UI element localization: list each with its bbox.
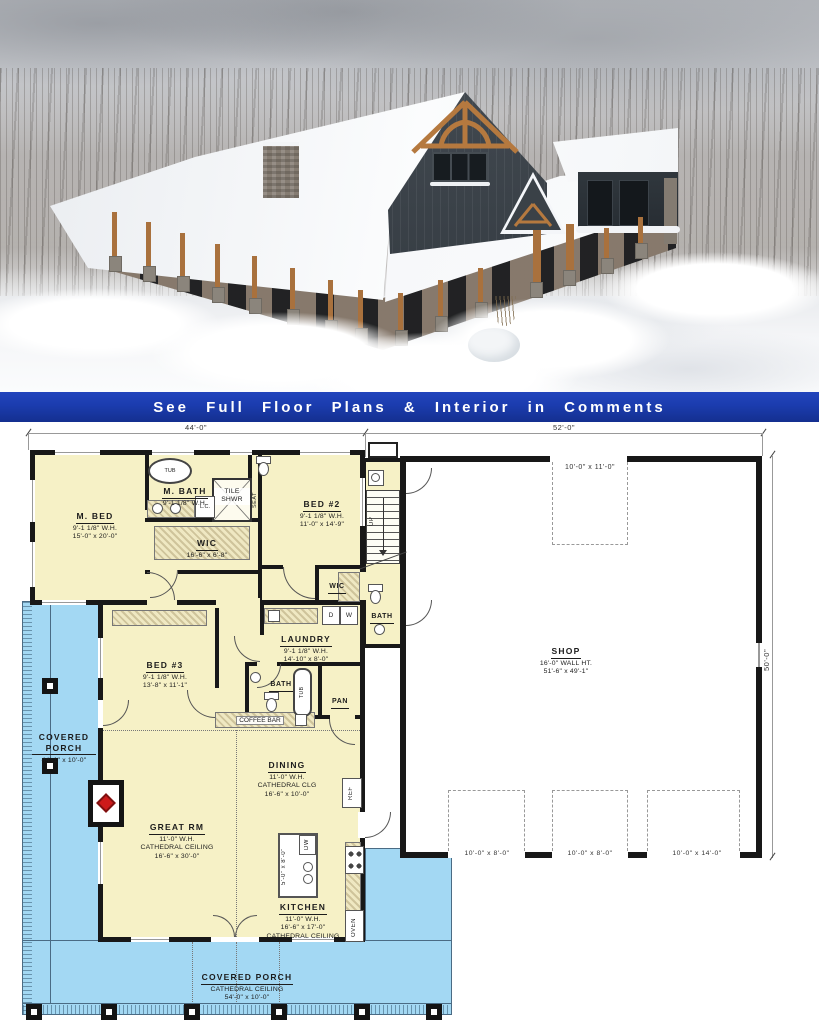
ceiling-dashed <box>103 730 360 731</box>
room-label-dining: DINING 11'-0" W.H. CATHEDRAL CLG 16'-6" … <box>227 754 347 799</box>
porch-post <box>42 678 58 694</box>
room-label-shop: SHOP 16'-0" WALL HT. 51'-6" x 49'-1" <box>496 640 636 677</box>
room-label-porch-bottom: COVERED PORCH CATHEDRAL CEILING 54'-0" x… <box>167 966 327 1003</box>
window <box>55 450 100 455</box>
porch-post <box>146 222 151 280</box>
window <box>30 542 35 587</box>
garage-door-label: 10'-0" x 14'-0" <box>654 850 740 857</box>
garage-door-track <box>552 790 628 851</box>
garage-door <box>587 180 613 226</box>
banner: See Full Floor Plans & Interior in Comme… <box>0 392 819 422</box>
garage-wing-wall <box>578 172 678 230</box>
room-label-m-bath: M. BATH 9'-1 1/8" W.H. <box>135 480 235 508</box>
porch-post <box>215 244 220 301</box>
room-label-bed3: BED #3 9'-1 1/8" W.H. 13'-8" x 11'-1" <box>105 654 225 691</box>
entry-truss-icon <box>513 202 553 228</box>
dim-label-52: 52'-0" <box>518 423 610 432</box>
door-opening <box>216 598 260 607</box>
garage-door-label: 10'-0" x 8'-0" <box>447 850 527 857</box>
hero-photo <box>0 0 819 392</box>
porch-post <box>604 228 609 272</box>
stone-corner <box>664 178 677 244</box>
porch-post <box>271 1004 287 1020</box>
sink-icon <box>371 473 380 482</box>
garage-door-track <box>448 790 525 851</box>
wall <box>178 570 258 574</box>
room-label-bed2: BED #2 9'-1 1/8" W.H. 11'-0" x 14'-9" <box>267 493 377 530</box>
dim-ext <box>762 433 763 456</box>
stair-arrowhead <box>379 550 387 556</box>
dim-line-right <box>772 456 773 858</box>
room-label-bath-shop: BATH <box>357 604 407 625</box>
window <box>98 842 103 884</box>
floor-plan: 44'-0" 52'-0" 50'-0" <box>0 422 819 1024</box>
laundry-sink <box>268 610 280 622</box>
window <box>755 643 763 667</box>
dim-label-50: 50'-0" <box>762 630 771 690</box>
window <box>42 600 86 605</box>
dim-label-44: 44'-0" <box>150 423 242 432</box>
porch-edge-hatch <box>23 1005 451 1014</box>
room-label-coffee-bar: COFFEE BAR <box>205 717 315 724</box>
dim-ext <box>28 433 29 450</box>
closet-rod <box>112 610 207 626</box>
toilet-icon <box>264 692 278 712</box>
wall <box>258 455 262 603</box>
window-snow-sill <box>430 182 490 186</box>
wall <box>245 662 249 719</box>
social-graphic: See Full Floor Plans & Interior in Comme… <box>0 0 819 1024</box>
porch-post <box>354 1004 370 1020</box>
porch-post <box>638 217 643 257</box>
window <box>98 638 103 678</box>
porch-post <box>112 212 117 270</box>
room-label-porch-left: COVERED PORCH 44'-1" x 10'-0" <box>24 732 104 765</box>
dryer: D <box>322 606 340 625</box>
door-swing <box>365 812 391 838</box>
room-label-wic2: WIC <box>317 574 357 595</box>
room-label-wic: WIC 16'-6" x 6'-8" <box>157 532 257 560</box>
snow-drift <box>600 252 819 326</box>
range <box>345 846 364 874</box>
wall <box>262 565 283 569</box>
refrigerator-label: REF <box>348 781 354 805</box>
window <box>152 450 194 455</box>
porch-post <box>26 1004 42 1020</box>
garage-door <box>619 180 649 226</box>
chimney <box>263 142 299 198</box>
seat-label: SEAT <box>252 480 258 520</box>
wall <box>315 565 360 569</box>
toilet-icon <box>256 456 270 476</box>
washer: W <box>340 606 358 625</box>
room-label-pantry: PAN <box>310 689 370 710</box>
porch-post <box>252 256 257 312</box>
porch-post <box>180 233 185 290</box>
garage-door-label: 10'-0" x 8'-0" <box>550 850 630 857</box>
dim-tick <box>770 853 776 861</box>
window <box>300 450 350 455</box>
room-label-great-room: GREAT RM 11'-0" W.H. CATHEDRAL CEILING 1… <box>112 816 242 861</box>
window <box>131 937 169 942</box>
sink-icon <box>303 874 313 884</box>
stair-arrow <box>383 498 384 550</box>
tub-label: TUB <box>165 468 176 474</box>
porch-beam <box>22 1003 452 1004</box>
room-label-m-bed: M. BED 9'-1 1/8" W.H. 15'-0" x 20'-0" <box>35 505 155 542</box>
garage-door-track <box>552 462 628 545</box>
porch-post <box>101 1004 117 1020</box>
gable-window <box>432 152 488 182</box>
porch-post <box>426 1004 442 1020</box>
garage-door-track <box>647 790 740 851</box>
toilet-icon <box>368 584 382 604</box>
grass-tuft <box>494 296 516 326</box>
snow-bush <box>468 328 520 362</box>
dishwasher-label: DW <box>304 837 310 853</box>
banner-text: See Full Floor Plans & Interior in Comme… <box>153 399 665 416</box>
porch-edge-hatch <box>23 602 32 1014</box>
entry-post <box>533 230 541 296</box>
sink-icon <box>374 624 385 635</box>
porch-post <box>184 1004 200 1020</box>
entry-stoop <box>368 442 398 458</box>
wall <box>248 455 252 480</box>
sink-icon <box>303 862 313 872</box>
room-label-kitchen: KITCHEN 11'-0" W.H. 16'-6" x 17'-0" CATH… <box>243 896 363 941</box>
snow-strip <box>576 226 680 233</box>
dim-ext <box>365 433 366 457</box>
dim-line-top <box>28 433 763 434</box>
room-label-bath-hall: BATH <box>251 672 311 693</box>
wall <box>355 715 365 719</box>
porch-beam <box>50 602 51 1003</box>
island-size-label: 5'-0" x 8'-0" <box>281 842 287 892</box>
timber-truss-icon <box>405 98 525 156</box>
entry-post <box>566 224 574 284</box>
room-label-laundry: LAUNDRY 9'-1 1/8" W.H. 14'-10" x 8'-0" <box>251 628 361 665</box>
